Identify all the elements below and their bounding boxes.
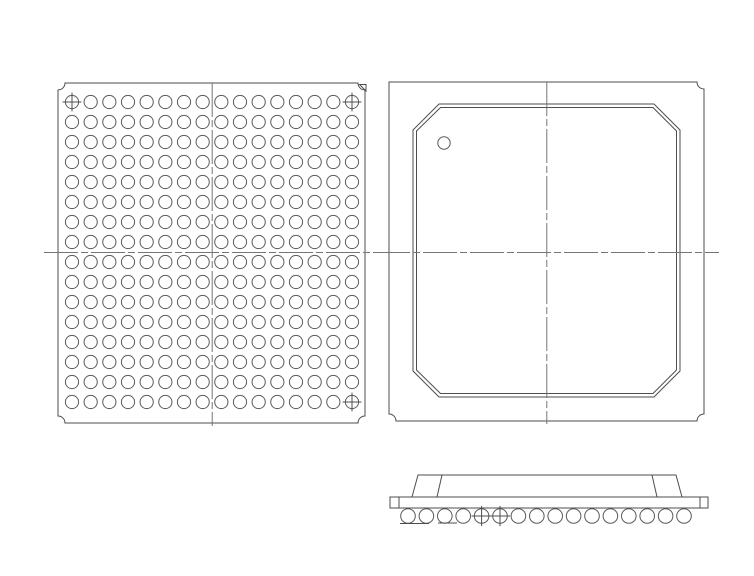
ball xyxy=(215,295,228,308)
ball xyxy=(177,375,190,388)
ball xyxy=(233,295,246,308)
ball xyxy=(121,315,134,328)
ball xyxy=(289,155,302,168)
ball xyxy=(233,355,246,368)
ball xyxy=(345,215,358,228)
ball xyxy=(121,175,134,188)
bottom-view xyxy=(44,83,381,426)
ball xyxy=(65,215,78,228)
top-view xyxy=(376,82,719,424)
ball xyxy=(327,335,340,348)
ball xyxy=(140,95,153,108)
ball xyxy=(271,295,284,308)
side-view-lid-bevel-right xyxy=(652,475,657,497)
ball xyxy=(252,395,265,408)
ball xyxy=(327,295,340,308)
ball xyxy=(308,375,321,388)
side-ball-fiducials xyxy=(472,506,511,526)
ball xyxy=(215,375,228,388)
ball xyxy=(289,95,302,108)
ball xyxy=(233,195,246,208)
ball xyxy=(103,175,116,188)
ball xyxy=(289,255,302,268)
ball xyxy=(289,215,302,228)
ball xyxy=(177,235,190,248)
side-view-lid-bevel-left xyxy=(437,475,442,497)
ball xyxy=(140,215,153,228)
ball xyxy=(159,155,172,168)
ball xyxy=(140,355,153,368)
ball xyxy=(308,395,321,408)
ball xyxy=(308,195,321,208)
ball xyxy=(345,275,358,288)
ball xyxy=(65,315,78,328)
ball xyxy=(159,175,172,188)
ball xyxy=(345,315,358,328)
ball xyxy=(140,335,153,348)
ball xyxy=(121,375,134,388)
ball xyxy=(327,135,340,148)
ball xyxy=(65,375,78,388)
side-ball xyxy=(419,509,434,524)
ball xyxy=(177,115,190,128)
ball xyxy=(271,175,284,188)
ball xyxy=(271,215,284,228)
ball xyxy=(140,395,153,408)
ball xyxy=(308,155,321,168)
ball xyxy=(345,355,358,368)
side-ball xyxy=(603,509,618,524)
ball xyxy=(215,95,228,108)
ball xyxy=(140,255,153,268)
ball xyxy=(196,135,209,148)
side-ball xyxy=(677,509,692,524)
ball xyxy=(103,195,116,208)
ball xyxy=(177,275,190,288)
ball xyxy=(289,315,302,328)
ball xyxy=(289,235,302,248)
side-ball xyxy=(456,509,471,524)
ball xyxy=(159,315,172,328)
ball xyxy=(84,155,97,168)
ball xyxy=(121,195,134,208)
ball xyxy=(289,375,302,388)
ball xyxy=(252,255,265,268)
ball xyxy=(308,355,321,368)
package-drawing xyxy=(0,0,754,576)
ball xyxy=(345,175,358,188)
ball xyxy=(121,295,134,308)
ball xyxy=(327,215,340,228)
ball xyxy=(289,195,302,208)
side-ball-row xyxy=(401,509,692,524)
ball xyxy=(289,355,302,368)
ball xyxy=(271,135,284,148)
ball xyxy=(159,335,172,348)
side-ball xyxy=(548,509,563,524)
ball xyxy=(271,155,284,168)
ball xyxy=(121,155,134,168)
ball xyxy=(177,295,190,308)
ball xyxy=(140,135,153,148)
drawing-canvas xyxy=(0,0,754,576)
ball xyxy=(233,215,246,228)
ball xyxy=(215,115,228,128)
ball xyxy=(103,275,116,288)
side-view xyxy=(390,475,708,526)
ball xyxy=(215,395,228,408)
ball xyxy=(65,395,78,408)
ball xyxy=(196,215,209,228)
ball xyxy=(84,395,97,408)
ball xyxy=(252,295,265,308)
ball xyxy=(308,175,321,188)
side-view-substrate xyxy=(390,497,708,508)
ball xyxy=(103,115,116,128)
ball xyxy=(271,195,284,208)
ball xyxy=(308,135,321,148)
ball xyxy=(345,195,358,208)
ball xyxy=(140,155,153,168)
ball xyxy=(215,175,228,188)
ball xyxy=(271,95,284,108)
ball xyxy=(140,295,153,308)
ball xyxy=(84,135,97,148)
ball xyxy=(65,115,78,128)
ball xyxy=(271,335,284,348)
ball xyxy=(103,295,116,308)
side-ball xyxy=(511,509,526,524)
ball xyxy=(215,215,228,228)
ball xyxy=(345,255,358,268)
ball xyxy=(159,115,172,128)
ball xyxy=(215,155,228,168)
ball xyxy=(196,355,209,368)
ball xyxy=(177,195,190,208)
ball xyxy=(196,335,209,348)
ball xyxy=(308,335,321,348)
ball xyxy=(84,255,97,268)
ball xyxy=(215,255,228,268)
ball xyxy=(345,135,358,148)
ball xyxy=(233,335,246,348)
ball xyxy=(121,115,134,128)
ball xyxy=(103,235,116,248)
ball xyxy=(252,135,265,148)
ball xyxy=(215,195,228,208)
ball xyxy=(196,275,209,288)
side-ball xyxy=(438,509,453,524)
ball xyxy=(103,255,116,268)
ball xyxy=(140,235,153,248)
ball xyxy=(345,375,358,388)
ball xyxy=(177,155,190,168)
ball xyxy=(345,115,358,128)
ball xyxy=(65,135,78,148)
ball xyxy=(308,235,321,248)
ball xyxy=(159,255,172,268)
ball xyxy=(233,135,246,148)
ball xyxy=(289,295,302,308)
ball xyxy=(308,215,321,228)
ball xyxy=(196,95,209,108)
ball xyxy=(103,375,116,388)
ball xyxy=(233,235,246,248)
ball xyxy=(159,275,172,288)
ball xyxy=(177,335,190,348)
side-ball xyxy=(658,509,673,524)
ball xyxy=(159,375,172,388)
ball xyxy=(177,255,190,268)
ball xyxy=(140,275,153,288)
ball xyxy=(65,335,78,348)
ball xyxy=(159,195,172,208)
ball xyxy=(252,215,265,228)
ball xyxy=(65,275,78,288)
ball xyxy=(215,335,228,348)
ball xyxy=(84,215,97,228)
ball xyxy=(121,355,134,368)
ball xyxy=(345,335,358,348)
ball xyxy=(103,395,116,408)
ball xyxy=(196,315,209,328)
ball xyxy=(196,195,209,208)
ball xyxy=(196,175,209,188)
ball xyxy=(233,115,246,128)
ball xyxy=(252,115,265,128)
ball xyxy=(327,115,340,128)
ball xyxy=(121,395,134,408)
ball xyxy=(252,335,265,348)
ball xyxy=(84,275,97,288)
ball xyxy=(121,135,134,148)
ball xyxy=(159,355,172,368)
ball xyxy=(159,235,172,248)
ball xyxy=(196,375,209,388)
ball xyxy=(252,95,265,108)
ball xyxy=(308,315,321,328)
ball xyxy=(252,235,265,248)
ball xyxy=(140,175,153,188)
ball xyxy=(327,275,340,288)
ball xyxy=(177,355,190,368)
ball xyxy=(233,95,246,108)
ball xyxy=(121,235,134,248)
ball xyxy=(140,195,153,208)
ball xyxy=(327,375,340,388)
ball xyxy=(65,295,78,308)
ball xyxy=(327,255,340,268)
ball xyxy=(271,375,284,388)
ball xyxy=(84,355,97,368)
ball xyxy=(308,255,321,268)
ball xyxy=(65,175,78,188)
ball xyxy=(84,95,97,108)
ball xyxy=(84,295,97,308)
ball xyxy=(103,335,116,348)
ball xyxy=(327,315,340,328)
ball xyxy=(84,315,97,328)
ball xyxy=(252,155,265,168)
ball xyxy=(289,395,302,408)
ball xyxy=(233,375,246,388)
ball xyxy=(252,375,265,388)
ball xyxy=(327,195,340,208)
ball xyxy=(308,95,321,108)
ball xyxy=(327,235,340,248)
ball xyxy=(327,155,340,168)
ball xyxy=(84,115,97,128)
ball xyxy=(159,135,172,148)
ball xyxy=(308,115,321,128)
side-ball xyxy=(530,509,545,524)
ball xyxy=(177,315,190,328)
ball xyxy=(103,355,116,368)
ball xyxy=(271,115,284,128)
ball xyxy=(103,95,116,108)
ball xyxy=(103,315,116,328)
ball xyxy=(289,175,302,188)
ball xyxy=(252,355,265,368)
ball xyxy=(271,275,284,288)
side-ball xyxy=(622,509,637,524)
ball xyxy=(65,355,78,368)
ball xyxy=(84,375,97,388)
ball xyxy=(121,215,134,228)
ball xyxy=(327,175,340,188)
ball xyxy=(159,95,172,108)
ball xyxy=(159,295,172,308)
ball xyxy=(121,255,134,268)
ball xyxy=(233,395,246,408)
ball xyxy=(121,275,134,288)
ball xyxy=(103,215,116,228)
ball xyxy=(289,275,302,288)
ball xyxy=(177,95,190,108)
ball xyxy=(252,275,265,288)
ball xyxy=(327,395,340,408)
pin1-dot-icon xyxy=(438,137,450,149)
ball xyxy=(65,195,78,208)
ball xyxy=(252,315,265,328)
ball xyxy=(271,255,284,268)
ball xyxy=(159,215,172,228)
ball xyxy=(215,135,228,148)
ball xyxy=(159,395,172,408)
ball xyxy=(233,155,246,168)
ball xyxy=(327,355,340,368)
ball xyxy=(233,255,246,268)
ball xyxy=(271,395,284,408)
ball xyxy=(345,295,358,308)
ball xyxy=(271,355,284,368)
ball xyxy=(65,155,78,168)
side-view-lid xyxy=(412,475,682,497)
side-ball xyxy=(401,509,416,524)
ball xyxy=(196,395,209,408)
ball xyxy=(177,215,190,228)
ball xyxy=(177,395,190,408)
ball xyxy=(327,95,340,108)
ball xyxy=(215,275,228,288)
ball xyxy=(177,175,190,188)
ball xyxy=(177,135,190,148)
ball xyxy=(271,315,284,328)
ball xyxy=(308,275,321,288)
ball xyxy=(103,155,116,168)
side-ball xyxy=(566,509,581,524)
ball xyxy=(289,135,302,148)
ball xyxy=(84,195,97,208)
ball xyxy=(140,115,153,128)
ball xyxy=(196,235,209,248)
ball xyxy=(65,235,78,248)
ball xyxy=(65,255,78,268)
ball xyxy=(121,335,134,348)
ball xyxy=(121,95,134,108)
ball xyxy=(196,115,209,128)
ball xyxy=(252,195,265,208)
ball xyxy=(140,375,153,388)
ball xyxy=(196,295,209,308)
ball xyxy=(289,115,302,128)
ball xyxy=(233,315,246,328)
ball xyxy=(196,255,209,268)
ball xyxy=(196,155,209,168)
ball xyxy=(252,175,265,188)
side-ball xyxy=(640,509,655,524)
ball xyxy=(233,275,246,288)
ball xyxy=(345,155,358,168)
ball xyxy=(308,295,321,308)
ball xyxy=(103,135,116,148)
ball xyxy=(215,235,228,248)
ball xyxy=(215,315,228,328)
ball xyxy=(84,175,97,188)
ball xyxy=(289,335,302,348)
ball xyxy=(233,175,246,188)
ball xyxy=(84,235,97,248)
ball xyxy=(215,355,228,368)
ball xyxy=(140,315,153,328)
side-ball xyxy=(585,509,600,524)
ball xyxy=(271,235,284,248)
ball xyxy=(345,235,358,248)
ball xyxy=(84,335,97,348)
